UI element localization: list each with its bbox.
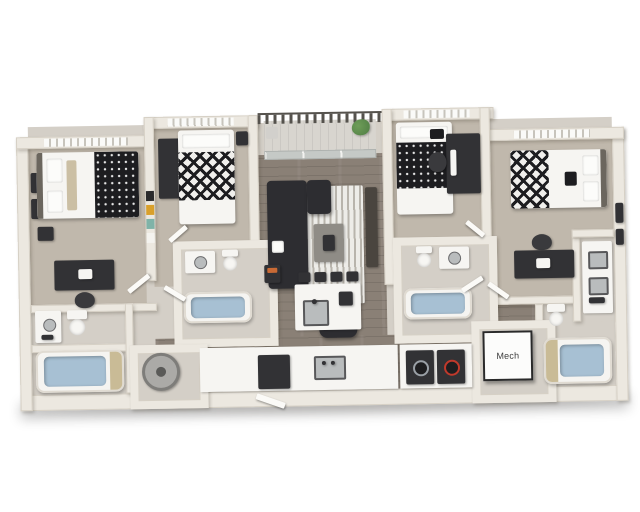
vanity-sink xyxy=(35,311,62,343)
pillow-black xyxy=(565,172,577,186)
wall-poster xyxy=(147,233,155,243)
wall-vanity-nook-top xyxy=(572,229,614,238)
vanity-sink xyxy=(582,241,613,314)
toilet-bowl xyxy=(417,253,431,267)
wall-poster xyxy=(146,191,154,201)
window-bedroom-4 xyxy=(514,129,590,138)
kitchen-sink xyxy=(314,356,346,381)
pillow xyxy=(583,181,599,201)
window-bedroom-1 xyxy=(44,137,128,146)
headboard xyxy=(36,153,43,219)
faucet xyxy=(322,361,326,365)
wall-art xyxy=(615,203,623,223)
faucet xyxy=(331,361,335,365)
floorplan-image: Mech xyxy=(0,0,640,512)
blanket xyxy=(510,150,549,209)
bar-cart xyxy=(264,265,280,283)
bed-bedroom-1 xyxy=(36,151,139,219)
wall-art xyxy=(616,229,624,245)
sink-bowl xyxy=(448,252,461,265)
bathtub-water xyxy=(44,356,107,387)
pillow xyxy=(47,191,63,213)
desk-chair xyxy=(428,152,446,172)
bathtub-water xyxy=(411,293,465,315)
toilet-bowl xyxy=(223,256,237,270)
island-sink xyxy=(303,300,329,326)
island-decor xyxy=(339,291,353,305)
blanket xyxy=(94,151,139,218)
desk-chair xyxy=(75,292,95,308)
nightstand xyxy=(236,131,248,145)
bar-stool xyxy=(330,272,342,282)
toilet-bowl xyxy=(549,312,563,326)
wall-poster xyxy=(146,219,154,229)
media-console xyxy=(365,187,378,267)
balcony-chair xyxy=(266,127,278,139)
window-bedroom-3 xyxy=(404,109,470,118)
kitchen-island xyxy=(295,283,362,330)
table-tray xyxy=(323,235,335,251)
washer-door xyxy=(413,360,429,376)
bar-stool xyxy=(298,272,310,282)
bathtub xyxy=(184,291,253,323)
mech-label: Mech xyxy=(496,351,519,361)
toilet-tank xyxy=(67,310,87,319)
pillow xyxy=(582,155,598,175)
nightstand xyxy=(38,227,54,241)
pillow xyxy=(46,159,62,183)
dishwasher xyxy=(258,355,291,390)
sofa-pillow xyxy=(272,241,284,253)
washer xyxy=(406,350,435,384)
vanity-sink xyxy=(439,246,469,269)
shower-curtain xyxy=(546,340,559,382)
bed-bedroom-4 xyxy=(510,149,607,209)
bathtub xyxy=(404,287,473,319)
sink-basin xyxy=(588,277,608,295)
pillow xyxy=(182,134,230,149)
dryer xyxy=(437,350,466,384)
sink-basin xyxy=(588,251,608,269)
bathtub-water xyxy=(560,344,605,377)
pillow-black xyxy=(430,129,444,139)
faucet xyxy=(312,299,317,304)
wall-poster xyxy=(146,205,154,215)
decor-orange xyxy=(267,268,277,273)
kitchen-counter xyxy=(200,345,399,392)
toilet xyxy=(416,246,432,268)
vanity-sink xyxy=(185,251,215,274)
throw-pillow xyxy=(66,160,77,210)
bathtub-water xyxy=(191,296,245,318)
mech-unit: Mech xyxy=(482,330,533,381)
shower-curtain xyxy=(110,352,123,390)
coffee-table xyxy=(313,224,344,263)
blanket xyxy=(178,152,235,201)
apartment-floor-plan: Mech xyxy=(15,89,628,418)
bathtub xyxy=(544,337,613,384)
window-bedroom-2 xyxy=(168,118,234,127)
desk-bedroom-3 xyxy=(446,133,481,194)
bar-stool xyxy=(314,272,326,282)
sink-bowl xyxy=(194,256,207,269)
desk-chair xyxy=(532,234,552,250)
desk-bedroom-1 xyxy=(54,260,115,291)
headboard xyxy=(600,149,607,207)
vanity-tray xyxy=(41,335,53,340)
desk-bedroom-4 xyxy=(514,250,574,279)
toilet-tank xyxy=(547,304,565,312)
water-heater-cap xyxy=(156,367,166,377)
sofa-chaise xyxy=(307,180,332,214)
bed-bedroom-2 xyxy=(178,130,236,225)
monitor xyxy=(450,150,456,176)
dryer-door xyxy=(444,360,460,376)
sink-bowl xyxy=(43,319,56,332)
toilet-bowl xyxy=(69,319,85,335)
toilet xyxy=(547,304,565,328)
toilet xyxy=(222,249,238,271)
laptop xyxy=(536,258,550,268)
toilet xyxy=(67,310,87,336)
laptop xyxy=(78,269,92,279)
bar-stool xyxy=(346,271,358,281)
vanity-tray xyxy=(589,297,605,303)
bathtub xyxy=(36,349,125,393)
